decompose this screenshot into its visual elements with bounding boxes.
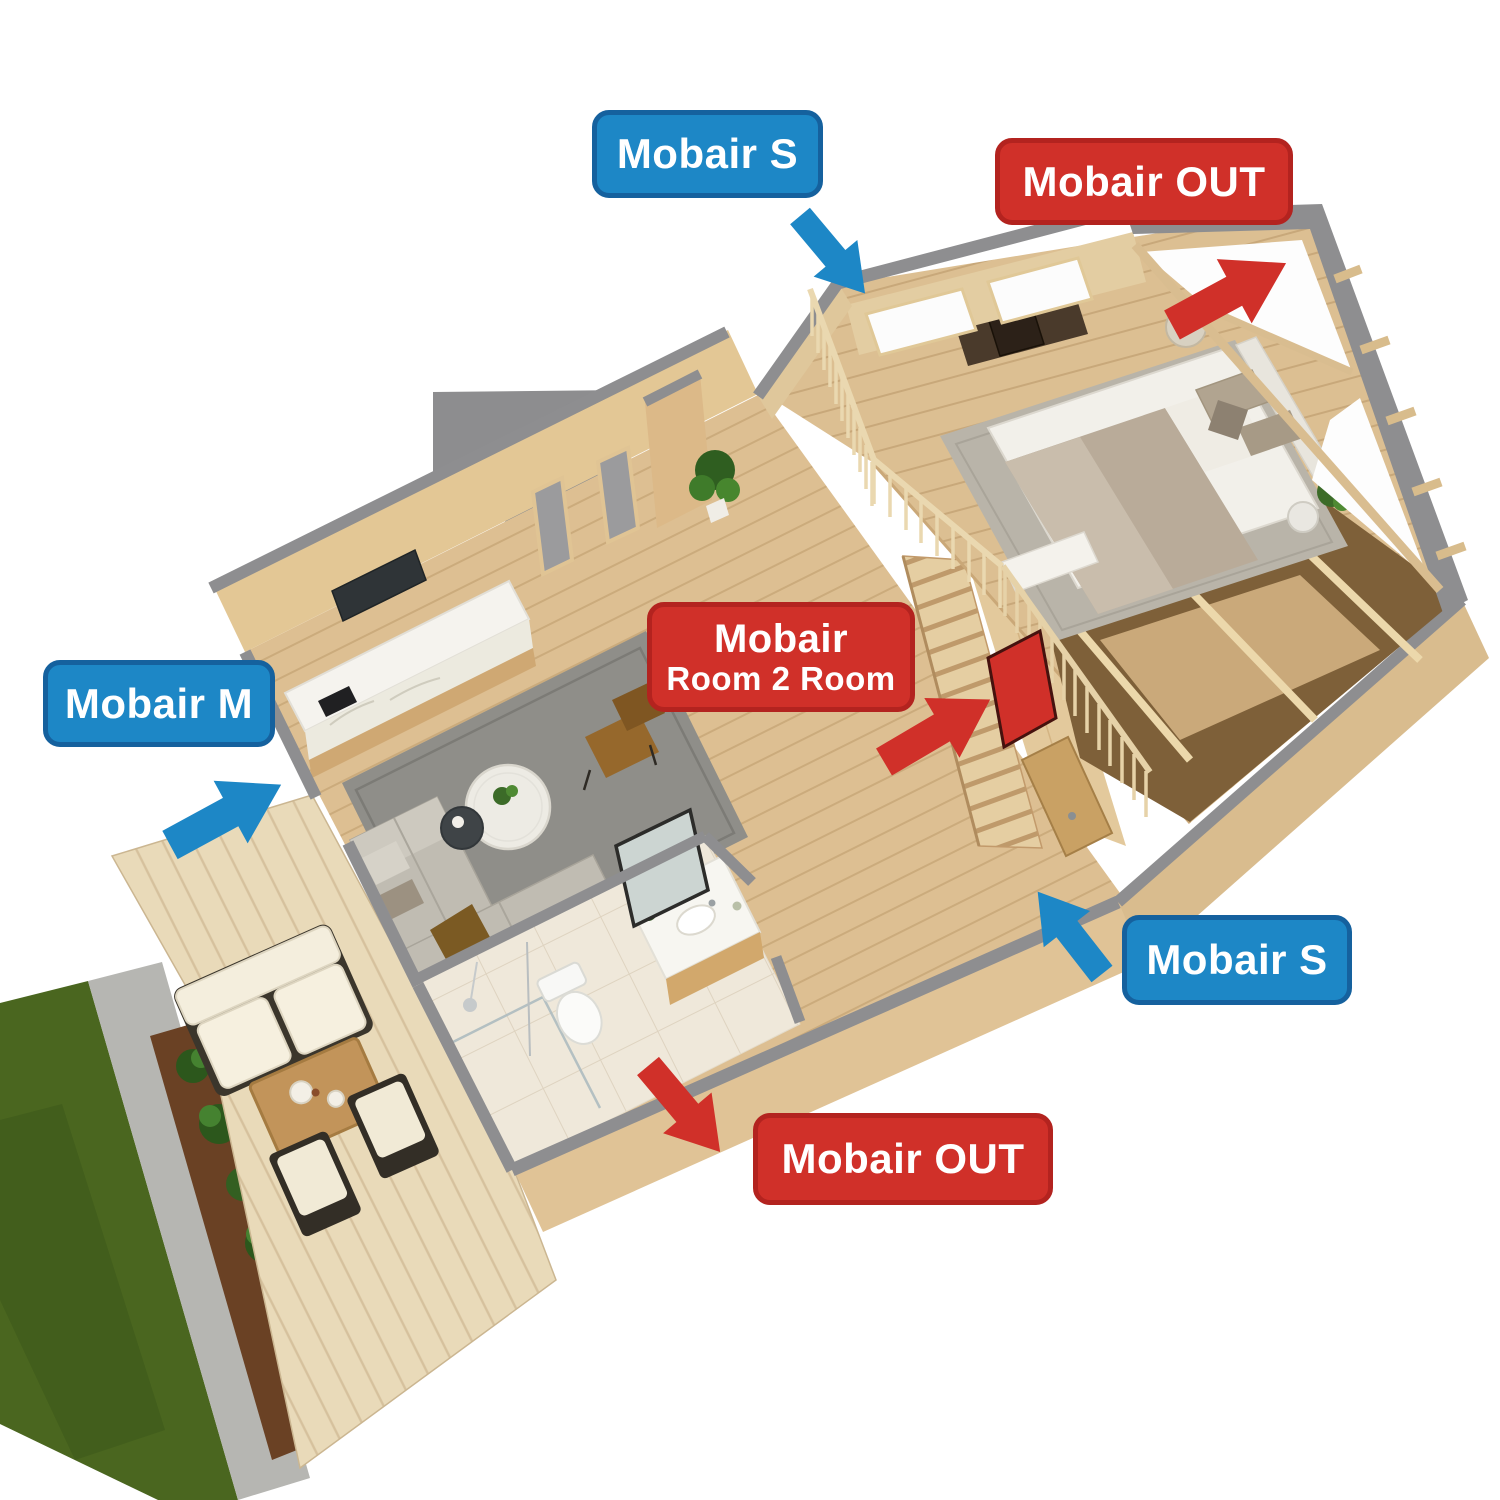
label-text: Mobair S	[617, 130, 798, 178]
label-text-line2: Room 2 Room	[666, 661, 895, 697]
label-text: Mobair OUT	[1023, 158, 1266, 206]
label-text: Mobair S	[1146, 936, 1327, 984]
label-mobair-room2room: Mobair Room 2 Room	[647, 602, 915, 712]
label-mobair-m-left: Mobair M	[43, 660, 275, 747]
label-mobair-out-top: Mobair OUT	[995, 138, 1293, 225]
house-cutaway-illustration	[0, 0, 1500, 1500]
label-text-line1: Mobair	[714, 618, 848, 661]
label-mobair-out-bottom: Mobair OUT	[753, 1113, 1053, 1205]
label-mobair-s-right: Mobair S	[1122, 915, 1352, 1005]
mobair-house-ventilation-diagram: Mobair S Mobair OUT Mobair Room 2 Room M…	[0, 0, 1500, 1500]
label-text: Mobair M	[65, 680, 253, 728]
bedside-table	[1288, 502, 1318, 532]
side-table	[441, 807, 483, 849]
door-handle	[1068, 812, 1076, 820]
label-mobair-s-top: Mobair S	[592, 110, 823, 198]
label-text: Mobair OUT	[782, 1135, 1025, 1183]
